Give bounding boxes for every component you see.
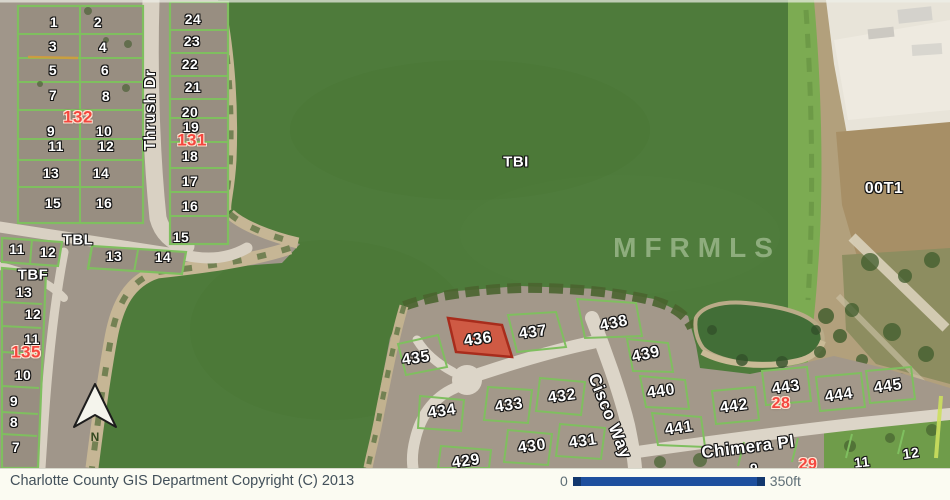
- map-canvas: [0, 0, 950, 468]
- highlighted-lot-436: [448, 318, 512, 357]
- status-bar: Charlotte County GIS Department Copyrigh…: [0, 468, 950, 500]
- scale-bar: 0 350ft: [560, 473, 801, 489]
- scale-rule: [573, 477, 765, 486]
- copyright-text: Charlotte County GIS Department Copyrigh…: [10, 473, 354, 489]
- gis-map-screenshot: 1234567813291011121314151624232221201913…: [0, 0, 950, 500]
- map-view[interactable]: 1234567813291011121314151624232221201913…: [0, 0, 950, 468]
- scale-end-label: 350ft: [770, 473, 801, 489]
- scale-start-label: 0: [560, 473, 568, 489]
